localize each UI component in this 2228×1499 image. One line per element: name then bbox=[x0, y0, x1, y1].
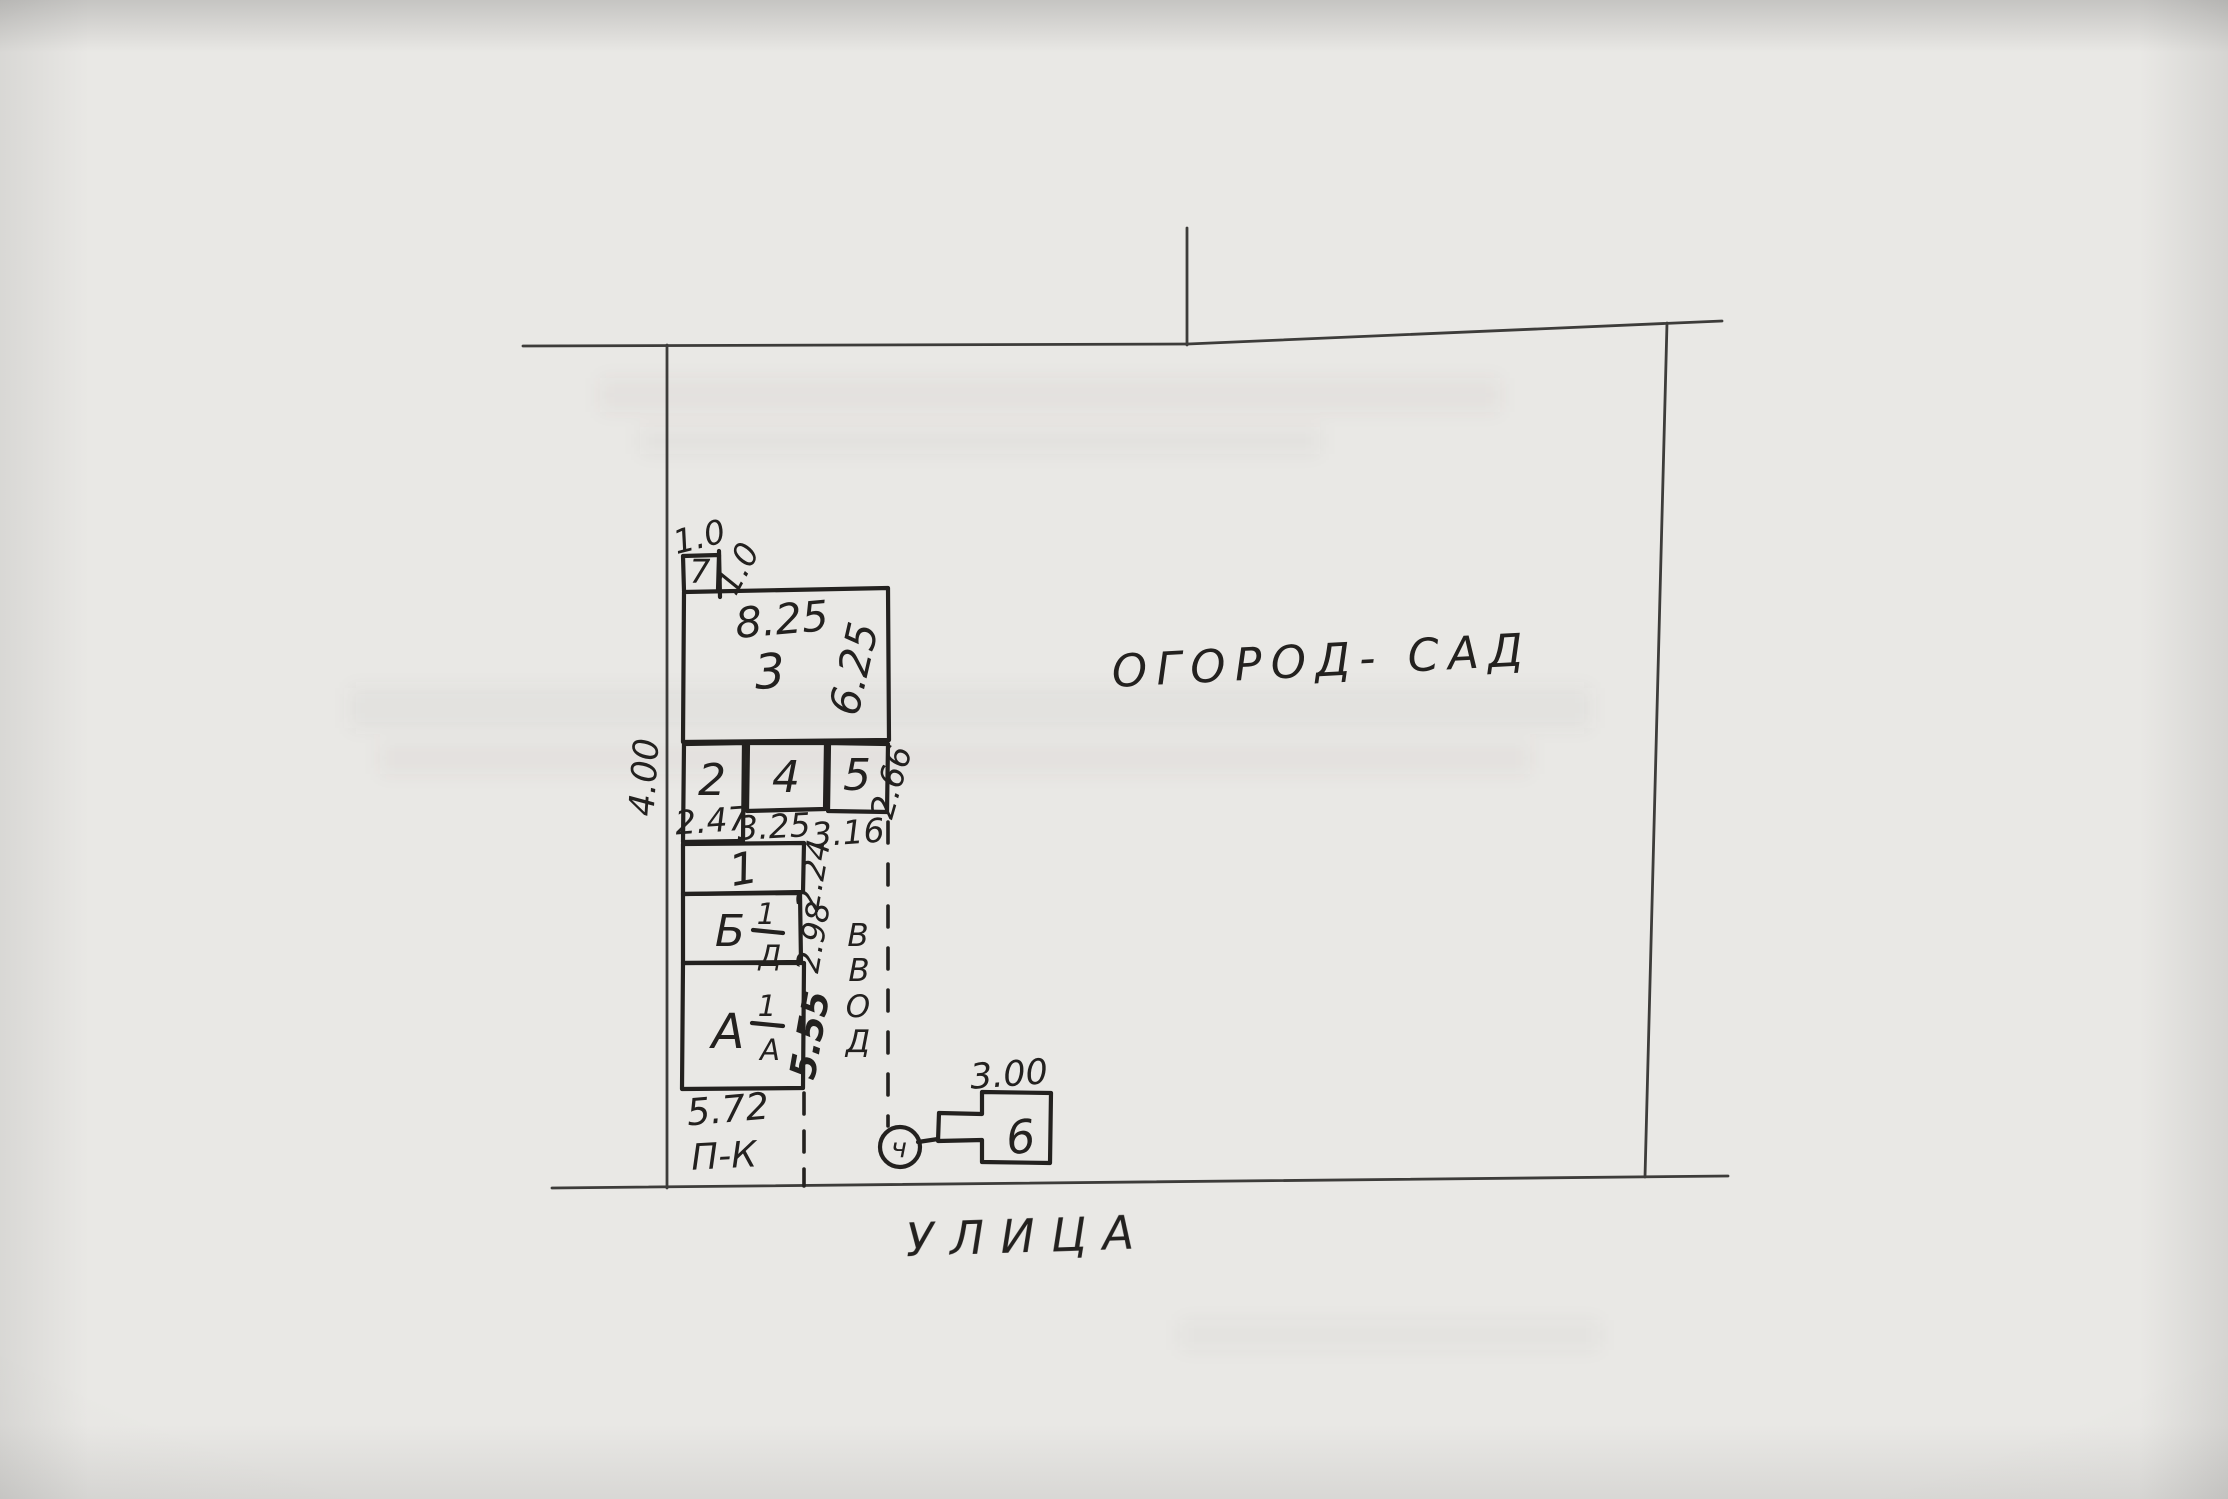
dim-buildingA-height: 5.55 bbox=[783, 988, 839, 1083]
garden-area-label: ОГОРОД- САД bbox=[1110, 623, 1533, 698]
street-label: УЛИЦА bbox=[905, 1205, 1151, 1267]
building-B-letter: Б bbox=[715, 906, 745, 957]
dim-left-boundary: 4.00 bbox=[622, 737, 667, 818]
building-1-label: 1 bbox=[725, 842, 761, 897]
boundary-top-right-segment bbox=[1188, 321, 1722, 344]
boundary-bottom-street-line bbox=[552, 1176, 1728, 1188]
building-A-label: А 1 А bbox=[709, 989, 783, 1067]
building-B-frac-numerator: 1 bbox=[757, 897, 775, 931]
dim-building6-width: 3.00 bbox=[969, 1052, 1050, 1097]
boundary-top-left-segment bbox=[523, 344, 1188, 346]
boundary-right bbox=[1645, 323, 1667, 1177]
utility-marker-connector bbox=[918, 1139, 938, 1142]
pk-label: П-К bbox=[690, 1134, 759, 1178]
building-2-label: 2 bbox=[698, 755, 726, 806]
building-B-frac-bar bbox=[753, 930, 783, 933]
dim-buildingB-height: 2.98 bbox=[788, 899, 838, 976]
building-A-frac-bar bbox=[752, 1023, 783, 1026]
vvod-letter-1: В bbox=[847, 918, 868, 954]
building-A-letter: А bbox=[709, 1004, 745, 1060]
vvod-letter-4: Д bbox=[844, 1024, 870, 1060]
building-3-label: 3 bbox=[753, 643, 787, 701]
scanned-plan-page: ч 7 3 2 4 5 1 6 Б 1 Д А 1 А 1.0 1.0 8.25… bbox=[0, 0, 2228, 1499]
vvod-vertical-word: В В О Д bbox=[844, 918, 870, 1060]
utility-marker-glyph: ч bbox=[891, 1133, 907, 1164]
building-B-frac-denominator: Д bbox=[757, 939, 782, 973]
building-6-label: 6 bbox=[1003, 1109, 1038, 1166]
building-4-label: 4 bbox=[772, 752, 800, 803]
vvod-letter-2: В bbox=[848, 953, 869, 989]
vvod-letter-3: О bbox=[846, 989, 870, 1025]
building-A-frac-numerator: 1 bbox=[758, 989, 776, 1023]
building-A-frac-denominator: А bbox=[758, 1033, 780, 1067]
site-plan-drawing: ч 7 3 2 4 5 1 6 Б 1 Д А 1 А 1.0 1.0 8.25… bbox=[0, 0, 2228, 1499]
dim-building3-width: 8.25 bbox=[733, 591, 830, 648]
dim-buildingA-width: 5.72 bbox=[685, 1085, 771, 1135]
bleedthrough-artifacts bbox=[350, 378, 1600, 1350]
